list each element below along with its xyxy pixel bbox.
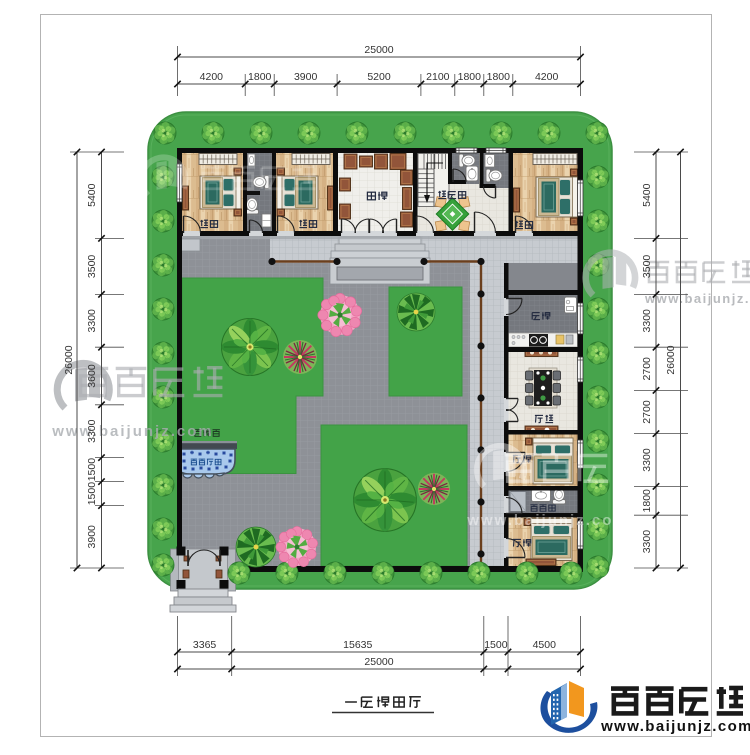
svg-text:3300: 3300 [86,309,98,333]
svg-text:1800: 1800 [248,71,272,83]
svg-text:2700: 2700 [641,400,653,424]
svg-text:www.baijunjz.com: www.baijunjz.com [600,718,750,735]
svg-text:4200: 4200 [535,71,559,83]
svg-text:www.baijunjz.com: www.baijunjz.com [466,512,628,529]
svg-text:2100: 2100 [426,71,450,83]
svg-text:3500: 3500 [641,255,653,279]
svg-text:1500: 1500 [484,639,508,651]
svg-text:3900: 3900 [86,525,98,549]
svg-text:15635: 15635 [343,639,372,651]
svg-text:www.baijunjz.com: www.baijunjz.com [644,291,750,306]
svg-text:5400: 5400 [641,183,653,207]
svg-text:1800: 1800 [487,71,511,83]
svg-text:1500: 1500 [86,482,98,506]
svg-text:26000: 26000 [665,345,677,374]
svg-text:5400: 5400 [86,183,98,207]
svg-text:3900: 3900 [294,71,318,83]
svg-text:2700: 2700 [641,357,653,381]
svg-text:1500: 1500 [86,458,98,482]
svg-text:3500: 3500 [86,255,98,279]
svg-text:1800: 1800 [458,71,482,83]
svg-text:25000: 25000 [364,656,393,668]
svg-text:4200: 4200 [200,71,224,83]
svg-text:1800: 1800 [641,489,653,513]
svg-text:3600: 3600 [86,364,98,388]
svg-text:25000: 25000 [364,44,393,56]
svg-text:5200: 5200 [367,71,391,83]
svg-text:26000: 26000 [63,345,75,374]
svg-text:3300: 3300 [641,530,653,554]
svg-text:3365: 3365 [193,639,217,651]
svg-text:3300: 3300 [641,448,653,472]
svg-text:3300: 3300 [86,419,98,443]
svg-text:3300: 3300 [641,309,653,333]
svg-text:4500: 4500 [533,639,557,651]
svg-text:www.baijunjz.com: www.baijunjz.com [51,423,213,440]
